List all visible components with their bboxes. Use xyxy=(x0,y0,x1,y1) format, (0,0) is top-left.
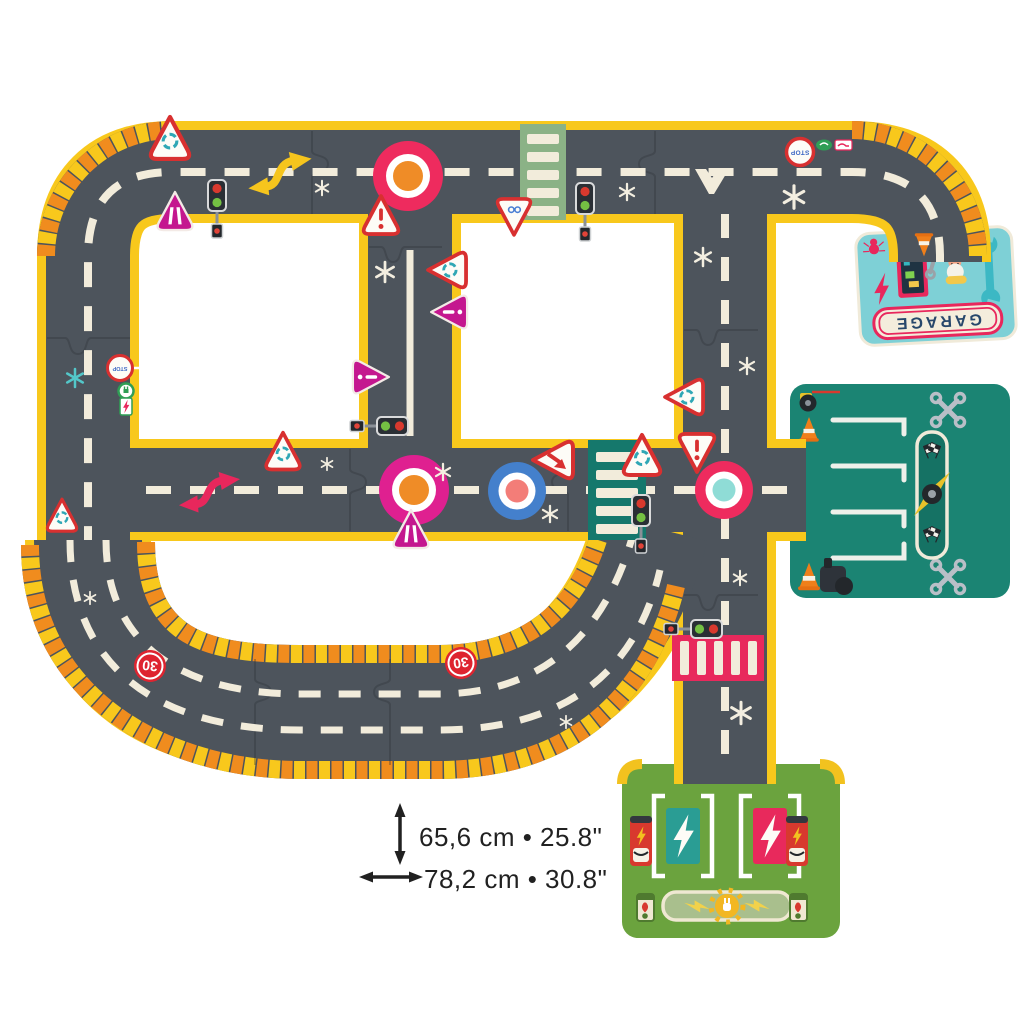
station-badge-right xyxy=(790,894,807,921)
svg-text:30: 30 xyxy=(141,657,159,675)
charge-pump-icon-right xyxy=(786,816,808,866)
svg-text:30: 30 xyxy=(452,654,470,672)
height-label: 65,6 cm • 25.8" xyxy=(419,822,602,852)
ev-charge-decal xyxy=(119,384,134,416)
roundabout-warning-sign xyxy=(266,433,300,470)
station-badge-left xyxy=(637,894,654,921)
road-puzzle-illustration: GARAGE xyxy=(0,0,1024,1024)
traffic-light xyxy=(208,180,226,238)
crosswalk-pink xyxy=(672,635,764,681)
yield-sign-bicycle xyxy=(498,199,531,235)
mini-stop-sign: STOP xyxy=(108,356,147,381)
roundabout-marker-3 xyxy=(488,462,546,520)
pit-banner xyxy=(914,432,950,558)
product-image: GARAGE xyxy=(0,0,1024,1024)
traffic-light xyxy=(576,183,594,241)
station-banner xyxy=(663,890,791,922)
width-arrow xyxy=(359,872,423,883)
roundabout-marker-4 xyxy=(695,461,753,519)
parking-piece xyxy=(790,384,1010,598)
dimension-annotation: 65,6 cm • 25.8" 78,2 cm • 30.8" xyxy=(359,803,607,894)
charging-station-piece xyxy=(622,764,840,938)
svg-text:STOP: STOP xyxy=(790,149,809,156)
height-arrow xyxy=(395,803,406,865)
charge-pump-icon-left xyxy=(630,816,652,866)
roundabout-warning-sign xyxy=(665,380,703,415)
svg-text:STOP: STOP xyxy=(112,365,127,371)
width-label: 78,2 cm • 30.8" xyxy=(424,864,607,894)
garage-sign: GARAGE xyxy=(873,303,1002,340)
traffic-light xyxy=(350,417,408,435)
stop-sign: STOP xyxy=(787,139,814,166)
